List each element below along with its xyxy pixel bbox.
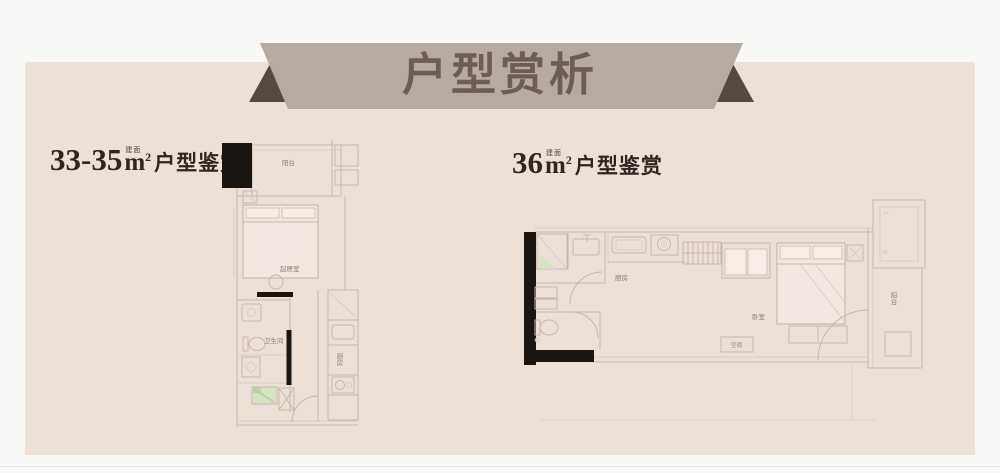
left-unit-sup: 2 <box>145 150 151 164</box>
toilet <box>243 337 248 351</box>
right-plan-heading: 36建面m2户型鉴赏 <box>512 145 663 181</box>
right-plan-furniture <box>535 234 911 360</box>
balcony-equipment <box>885 332 911 356</box>
floor-plan-right: 厨房 卧室 阳台 空调 <box>515 192 935 434</box>
wash-basin <box>242 304 261 321</box>
door-arc <box>572 312 598 338</box>
right-unit-note: 建面 <box>546 148 562 158</box>
left-unit-note: 建面 <box>125 145 141 155</box>
left-area-value: 33-35 <box>50 142 122 178</box>
laundry-cabinet <box>535 287 557 298</box>
left-plan-furniture <box>242 191 356 422</box>
room-label-bath: 卫生间 <box>264 336 284 345</box>
room-label-balcony: 阳台 <box>889 291 897 307</box>
poster-stage: 户型赏析 33-35建面m2户型鉴赏 36建面m2户型鉴赏 <box>0 0 1000 473</box>
left-plan-heading: 33-35建面m2户型鉴赏 <box>50 142 242 178</box>
floor-plan-left: 阳台 起居室 卫生间 厨房 <box>220 138 370 432</box>
room-label-bedroom: 卧室 <box>752 312 766 321</box>
page-title: 户型赏析 <box>240 52 760 99</box>
room-label-kitchen: 厨房 <box>615 273 628 282</box>
right-area-value: 36 <box>512 145 543 181</box>
pillow <box>282 208 315 218</box>
left-area-unit: 建面m2 <box>124 149 151 177</box>
pillow <box>780 246 810 259</box>
right-plan-labels: 厨房 卧室 阳台 空调 <box>615 273 897 349</box>
pillow <box>813 246 842 259</box>
right-heading-suffix: 户型鉴赏 <box>575 150 663 180</box>
room-label-living: 起居室 <box>280 264 300 273</box>
kitchen-sink <box>332 325 354 339</box>
door-arc <box>570 272 602 304</box>
left-plan-walls <box>234 140 358 427</box>
room-label-kitchen: 厨房 <box>335 353 343 368</box>
pillow <box>246 208 279 218</box>
room-label-balcony: 阳台 <box>282 158 295 167</box>
equipment-platform <box>873 200 925 268</box>
right-unit-sup: 2 <box>566 153 572 167</box>
footer-divider-line <box>0 466 1000 467</box>
black-shaft-block <box>222 143 252 188</box>
door-arc <box>292 396 318 422</box>
bath-sink <box>573 239 599 255</box>
room-label-ac: 空调 <box>731 341 743 349</box>
sofa-cushion <box>748 249 767 275</box>
kitchen-sink <box>612 237 646 253</box>
sofa-cushion <box>725 249 746 275</box>
right-area-unit: 建面m2 <box>545 152 572 180</box>
